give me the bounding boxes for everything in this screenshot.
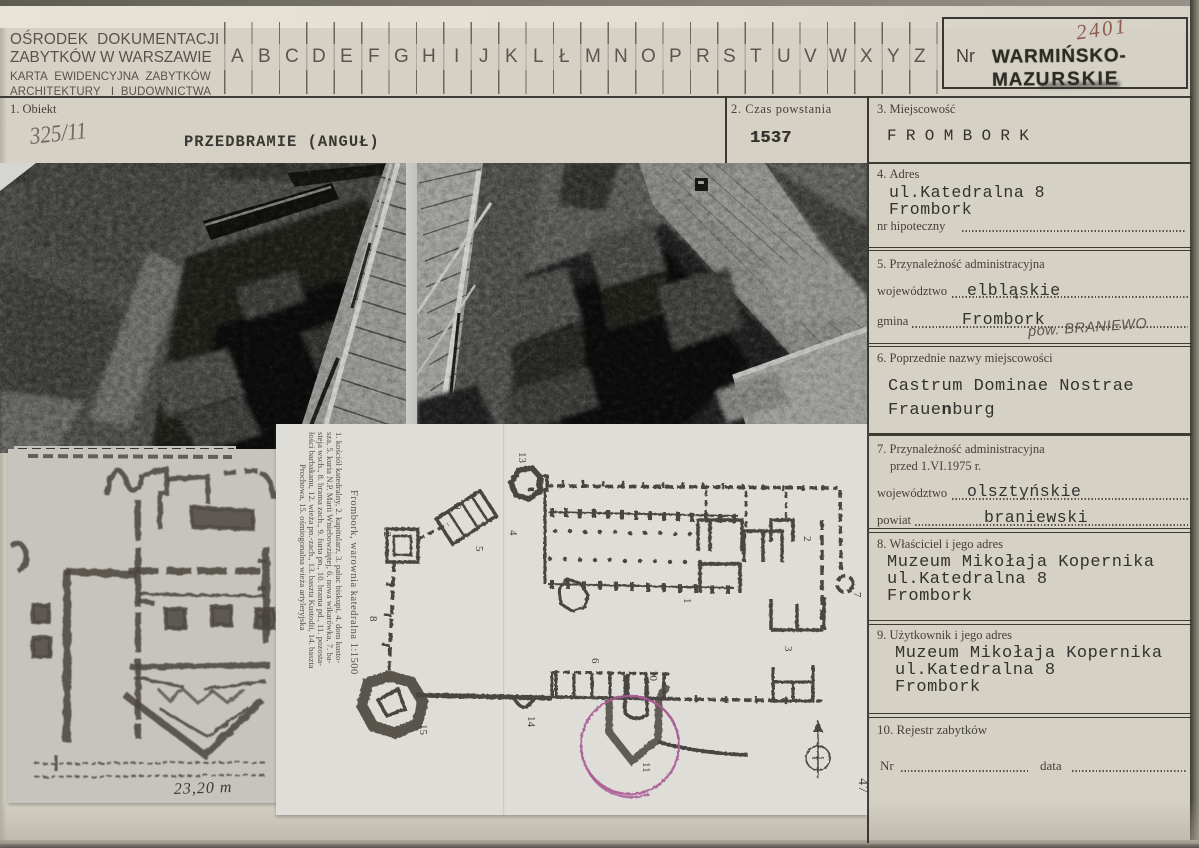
svg-text:2: 2 [801, 536, 813, 542]
svg-text:12: 12 [381, 526, 393, 537]
svg-text:Frombork, warownia katedralna: Frombork, warownia katedralna 1:1500 [348, 490, 359, 675]
svg-text:14: 14 [525, 716, 537, 728]
svg-text:steja wsch., 8. brama zach., 9: steja wsch., 8. brama zach., 9. furta pn… [316, 432, 326, 666]
svg-text:4: 4 [507, 530, 519, 536]
svg-text:1: 1 [681, 598, 693, 604]
svg-text:7: 7 [851, 592, 863, 598]
svg-text:1. kościół katedralny, 2. kapi: 1. kościół katedralny, 2. kapitularz, 3.… [334, 432, 344, 663]
svg-text:łości barbakanu, 12. wieża pn.: łości barbakanu, 12. wieża pn.-zach., 13… [307, 432, 317, 669]
svg-text:23,20 m: 23,20 m [174, 779, 233, 798]
svg-text:5: 5 [473, 546, 485, 552]
svg-text:8: 8 [367, 616, 379, 622]
svg-text:6: 6 [589, 658, 601, 664]
svg-text:10: 10 [647, 670, 659, 682]
svg-text:sza, 5. kuria N.P. Marii Wnieb: sza, 5. kuria N.P. Marii Wniebowziętej, … [325, 432, 335, 664]
svg-text:13: 13 [516, 452, 528, 464]
svg-text:11: 11 [640, 762, 652, 773]
svg-text:15: 15 [417, 724, 429, 736]
svg-text:3: 3 [782, 646, 794, 652]
svg-text:9: 9 [451, 504, 463, 510]
svg-text:Prochowa, 15. ośmiogonalna wie: Prochowa, 15. ośmiogonalna wieża artyler… [298, 464, 308, 631]
